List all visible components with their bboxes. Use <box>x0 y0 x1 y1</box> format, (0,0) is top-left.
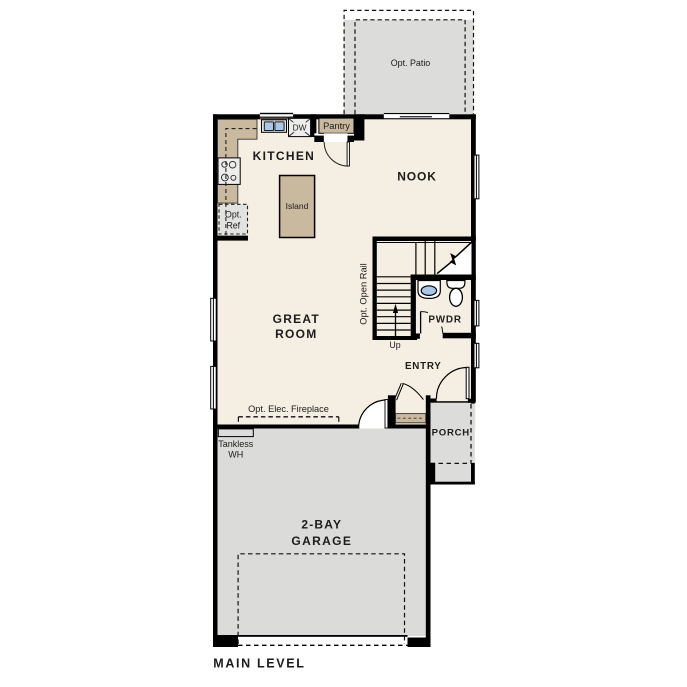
svg-text:ROOM: ROOM <box>275 327 317 341</box>
svg-text:PORCH: PORCH <box>432 427 470 438</box>
svg-text:WH: WH <box>228 450 243 460</box>
svg-text:Island: Island <box>286 201 309 211</box>
svg-text:Opt. Open Rail: Opt. Open Rail <box>359 263 369 325</box>
svg-text:MAIN LEVEL: MAIN LEVEL <box>213 657 305 671</box>
svg-text:PWDR: PWDR <box>428 314 461 325</box>
svg-text:ENTRY: ENTRY <box>405 361 442 372</box>
svg-text:Opt. Patio: Opt. Patio <box>391 58 431 68</box>
svg-text:NOOK: NOOK <box>397 169 437 183</box>
svg-text:KITCHEN: KITCHEN <box>253 149 315 163</box>
svg-text:DW: DW <box>293 123 307 133</box>
svg-text:GARAGE: GARAGE <box>291 534 352 548</box>
svg-text:Opt. Elec. Fireplace: Opt. Elec. Fireplace <box>248 404 329 414</box>
svg-text:Ref: Ref <box>226 221 240 231</box>
svg-text:Tankless: Tankless <box>218 439 254 449</box>
svg-text:2-BAY: 2-BAY <box>301 518 342 532</box>
svg-text:Opt.: Opt. <box>225 210 242 220</box>
svg-text:Pantry: Pantry <box>323 121 350 131</box>
svg-text:Up: Up <box>389 340 400 350</box>
svg-text:GREAT: GREAT <box>273 312 320 326</box>
